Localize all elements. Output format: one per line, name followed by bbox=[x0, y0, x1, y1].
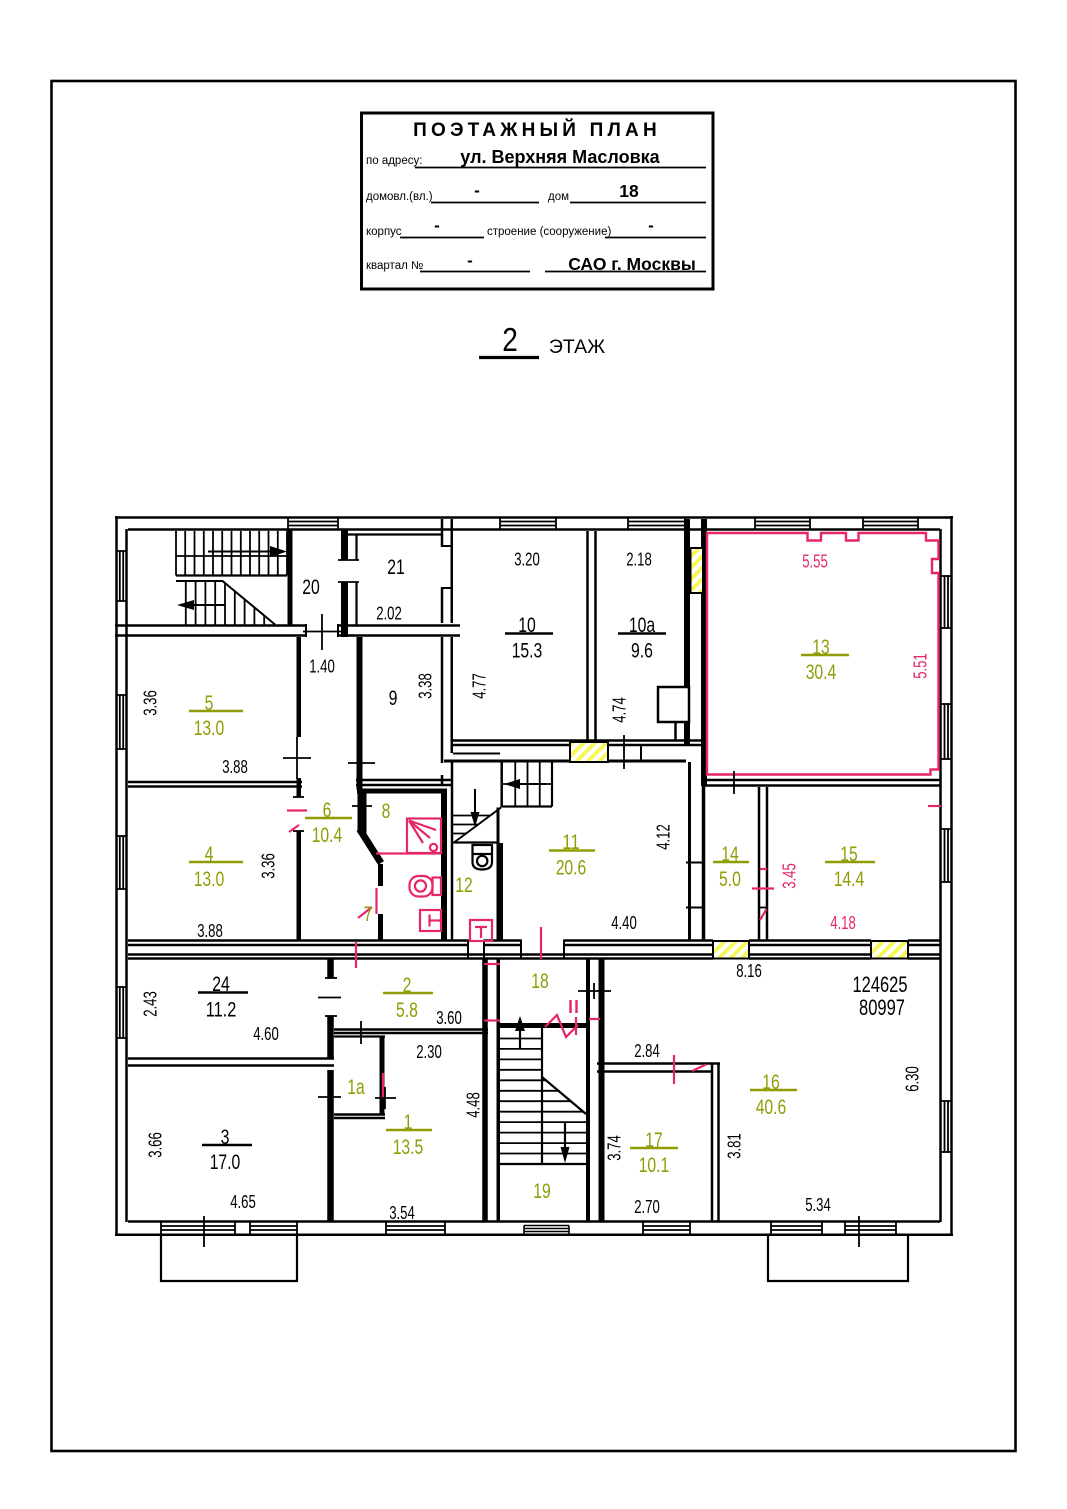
svg-text:-: - bbox=[434, 216, 440, 235]
svg-text:30.4: 30.4 bbox=[806, 661, 837, 684]
svg-text:ул. Верхняя Масловка: ул. Верхняя Масловка bbox=[460, 147, 660, 167]
svg-text:3.60: 3.60 bbox=[436, 1008, 462, 1028]
svg-text:21: 21 bbox=[387, 556, 405, 579]
svg-text:12: 12 bbox=[455, 874, 473, 897]
svg-text:квартал №: квартал № bbox=[366, 260, 423, 272]
svg-text:8: 8 bbox=[382, 800, 391, 823]
svg-text:-: - bbox=[467, 251, 473, 270]
svg-text:3.38: 3.38 bbox=[416, 673, 436, 699]
svg-text:3.88: 3.88 bbox=[222, 757, 248, 777]
svg-text:4.74: 4.74 bbox=[610, 697, 630, 723]
svg-text:5.55: 5.55 bbox=[802, 552, 828, 572]
svg-text:-: - bbox=[648, 216, 654, 235]
svg-text:4.12: 4.12 bbox=[654, 824, 674, 850]
svg-text:80997: 80997 bbox=[859, 995, 905, 1020]
svg-text:6.30: 6.30 bbox=[903, 1066, 923, 1092]
svg-text:4.48: 4.48 bbox=[464, 1092, 484, 1118]
svg-text:40.6: 40.6 bbox=[756, 1096, 787, 1119]
svg-text:1а: 1а bbox=[347, 1076, 365, 1099]
svg-text:5.34: 5.34 bbox=[805, 1195, 831, 1215]
svg-text:20: 20 bbox=[302, 576, 320, 599]
svg-text:3.74: 3.74 bbox=[605, 1135, 625, 1161]
svg-text:1.40: 1.40 bbox=[309, 657, 335, 677]
svg-text:по адресу:: по адресу: bbox=[366, 155, 422, 167]
svg-text:4.18: 4.18 bbox=[830, 913, 856, 933]
svg-text:корпус: корпус bbox=[366, 226, 402, 238]
svg-text:15.3: 15.3 bbox=[512, 640, 543, 663]
svg-text:2.84: 2.84 bbox=[634, 1041, 660, 1061]
svg-text:3.36: 3.36 bbox=[141, 690, 161, 716]
svg-text:дом: дом bbox=[548, 191, 569, 203]
svg-text:13.0: 13.0 bbox=[194, 868, 225, 891]
svg-text:19: 19 bbox=[533, 1180, 551, 1203]
svg-text:124625: 124625 bbox=[853, 972, 908, 997]
svg-text:20.6: 20.6 bbox=[556, 857, 587, 880]
svg-text:2.18: 2.18 bbox=[626, 550, 652, 570]
svg-text:3.66: 3.66 bbox=[146, 1132, 166, 1158]
svg-text:18: 18 bbox=[619, 181, 639, 201]
svg-text:10.4: 10.4 bbox=[312, 824, 343, 847]
svg-text:5.8: 5.8 bbox=[396, 999, 418, 1022]
svg-text:ПОЭТАЖНЫЙ ПЛАН: ПОЭТАЖНЫЙ ПЛАН bbox=[413, 119, 661, 141]
svg-text:4.60: 4.60 bbox=[253, 1024, 279, 1044]
svg-text:4.65: 4.65 bbox=[230, 1192, 256, 1212]
svg-text:14.4: 14.4 bbox=[834, 868, 865, 891]
svg-text:3.54: 3.54 bbox=[389, 1203, 415, 1223]
svg-text:13.0: 13.0 bbox=[194, 717, 225, 740]
svg-text:2.30: 2.30 bbox=[416, 1042, 442, 1062]
svg-text:3.20: 3.20 bbox=[514, 550, 540, 570]
svg-text:-: - bbox=[474, 181, 480, 200]
svg-text:2: 2 bbox=[502, 321, 518, 358]
svg-text:18: 18 bbox=[531, 970, 549, 993]
svg-text:4.40: 4.40 bbox=[611, 913, 637, 933]
svg-text:5.0: 5.0 bbox=[719, 868, 741, 891]
svg-text:8.16: 8.16 bbox=[736, 961, 762, 981]
svg-text:13.5: 13.5 bbox=[393, 1136, 424, 1159]
svg-text:2.43: 2.43 bbox=[141, 991, 161, 1017]
svg-text:3.36: 3.36 bbox=[259, 853, 279, 879]
svg-text:7: 7 bbox=[364, 903, 373, 926]
svg-text:17.0: 17.0 bbox=[210, 1151, 241, 1174]
svg-text:3.45: 3.45 bbox=[780, 863, 800, 889]
svg-text:2.02: 2.02 bbox=[376, 604, 402, 624]
svg-text:5.51: 5.51 bbox=[911, 653, 931, 679]
svg-text:2.70: 2.70 bbox=[634, 1197, 660, 1217]
svg-text:строение (сооружение): строение (сооружение) bbox=[487, 226, 611, 238]
svg-text:11.2: 11.2 bbox=[206, 999, 237, 1022]
svg-text:САО г. Москвы: САО г. Москвы bbox=[568, 254, 696, 274]
svg-text:домовл.(вл.): домовл.(вл.) bbox=[366, 191, 433, 203]
svg-text:3.81: 3.81 bbox=[725, 1133, 745, 1159]
svg-text:9: 9 bbox=[389, 687, 398, 710]
svg-text:10.1: 10.1 bbox=[639, 1154, 670, 1177]
svg-text:3.88: 3.88 bbox=[197, 921, 223, 941]
svg-text:9.6: 9.6 bbox=[631, 640, 653, 663]
svg-text:ЭТАЖ: ЭТАЖ bbox=[549, 336, 605, 358]
svg-text:4.77: 4.77 bbox=[470, 673, 490, 699]
